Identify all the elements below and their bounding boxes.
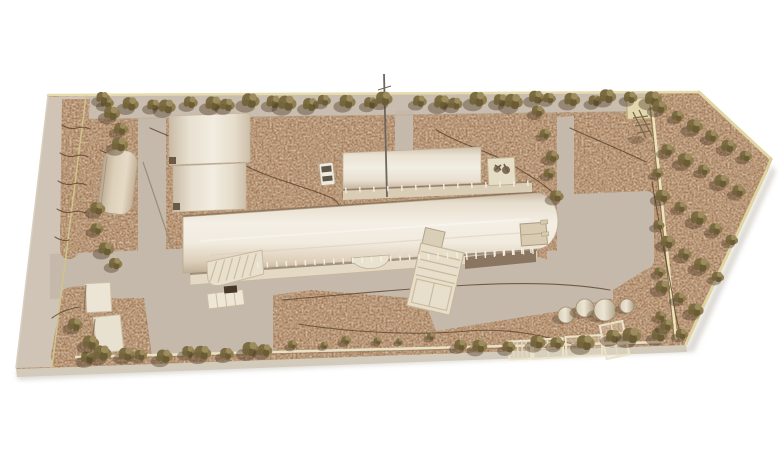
entrance-doorway [224,285,238,293]
storage-tank-cylinder [620,299,634,313]
sculpture-pad [487,157,515,185]
architectural-model-photo: Aerial photograph of an architectural si… [0,0,780,474]
vault-b-porch [173,203,180,210]
vault-a-porch [169,157,176,164]
vault-building-b [173,163,246,212]
model-car [319,162,335,185]
access-road-west [138,117,166,254]
photo-canvas: Aerial photograph of an architectural si… [0,0,780,474]
vault-building-a [169,113,250,165]
annex-vault-roof [343,147,481,189]
cottage-upper [85,282,111,312]
storage-tank-cylinder [594,299,616,321]
